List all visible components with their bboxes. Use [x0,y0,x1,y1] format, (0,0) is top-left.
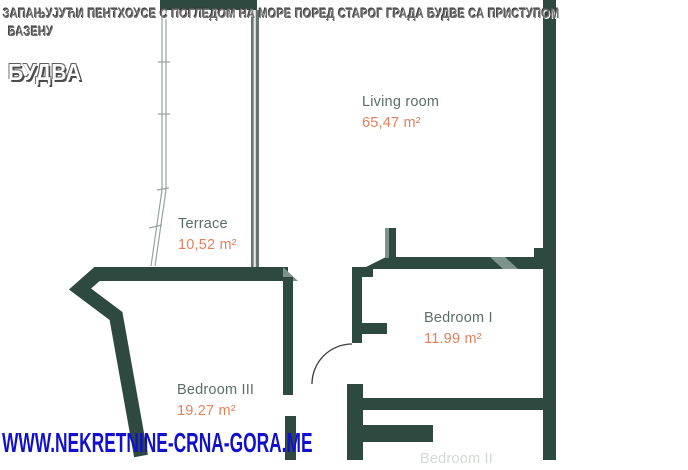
listing-title-line2: БАЗЕНУ [8,24,54,39]
room-area: 10,52 m² [178,235,237,256]
wall-bedroom1-bottom [352,398,547,410]
wall-livingroom-bottom [385,257,547,269]
room-label-terrace: Terrace 10,52 m² [178,214,237,256]
terrace-window-right [251,10,259,270]
room-area: 19.27 m² [177,401,254,422]
listing-title-line1: ЗАПАЊУЈУЋИ ПЕНТХОУСЕ С ПОГЛЕДОМ НА МОРЕ … [3,6,560,21]
room-name: Bedroom III [177,380,254,401]
floorplan-drawing [0,0,688,460]
room-area: 65,47 m² [362,113,439,134]
terrace-window-left [149,10,170,266]
door-arc [312,344,352,384]
room-label-bedroom-1: Bedroom I 11.99 m² [424,308,493,350]
wall-right-step [534,248,543,258]
wall-bedroom1-stub [352,323,387,334]
wall-right-outer [543,0,556,460]
wall-wedge-livingroom-left [362,257,386,269]
wall-bedroom2-closet [363,425,433,442]
floorplan-screenshot: { "header": { "title_line1": "ЗАПАЊУЈУЋИ… [0,0,688,460]
wall-bedroom1-left-lower [347,384,363,460]
wall-up-stub-light [385,228,389,258]
city-label: БУДВА [8,59,82,86]
watermark-url: WWW.NEKRETNINE-CRNA-GORA.ME [2,427,313,459]
room-name: Terrace [178,214,237,235]
room-area: 11.99 m² [424,329,493,350]
room-label-living-room: Living room 65,47 m² [362,92,439,134]
room-name: Living room [362,92,439,113]
room-label-bedroom-3: Bedroom III 19.27 m² [177,380,254,422]
wall-bedroom3-right-upper [283,277,293,395]
room-name: Bedroom I [424,308,493,329]
